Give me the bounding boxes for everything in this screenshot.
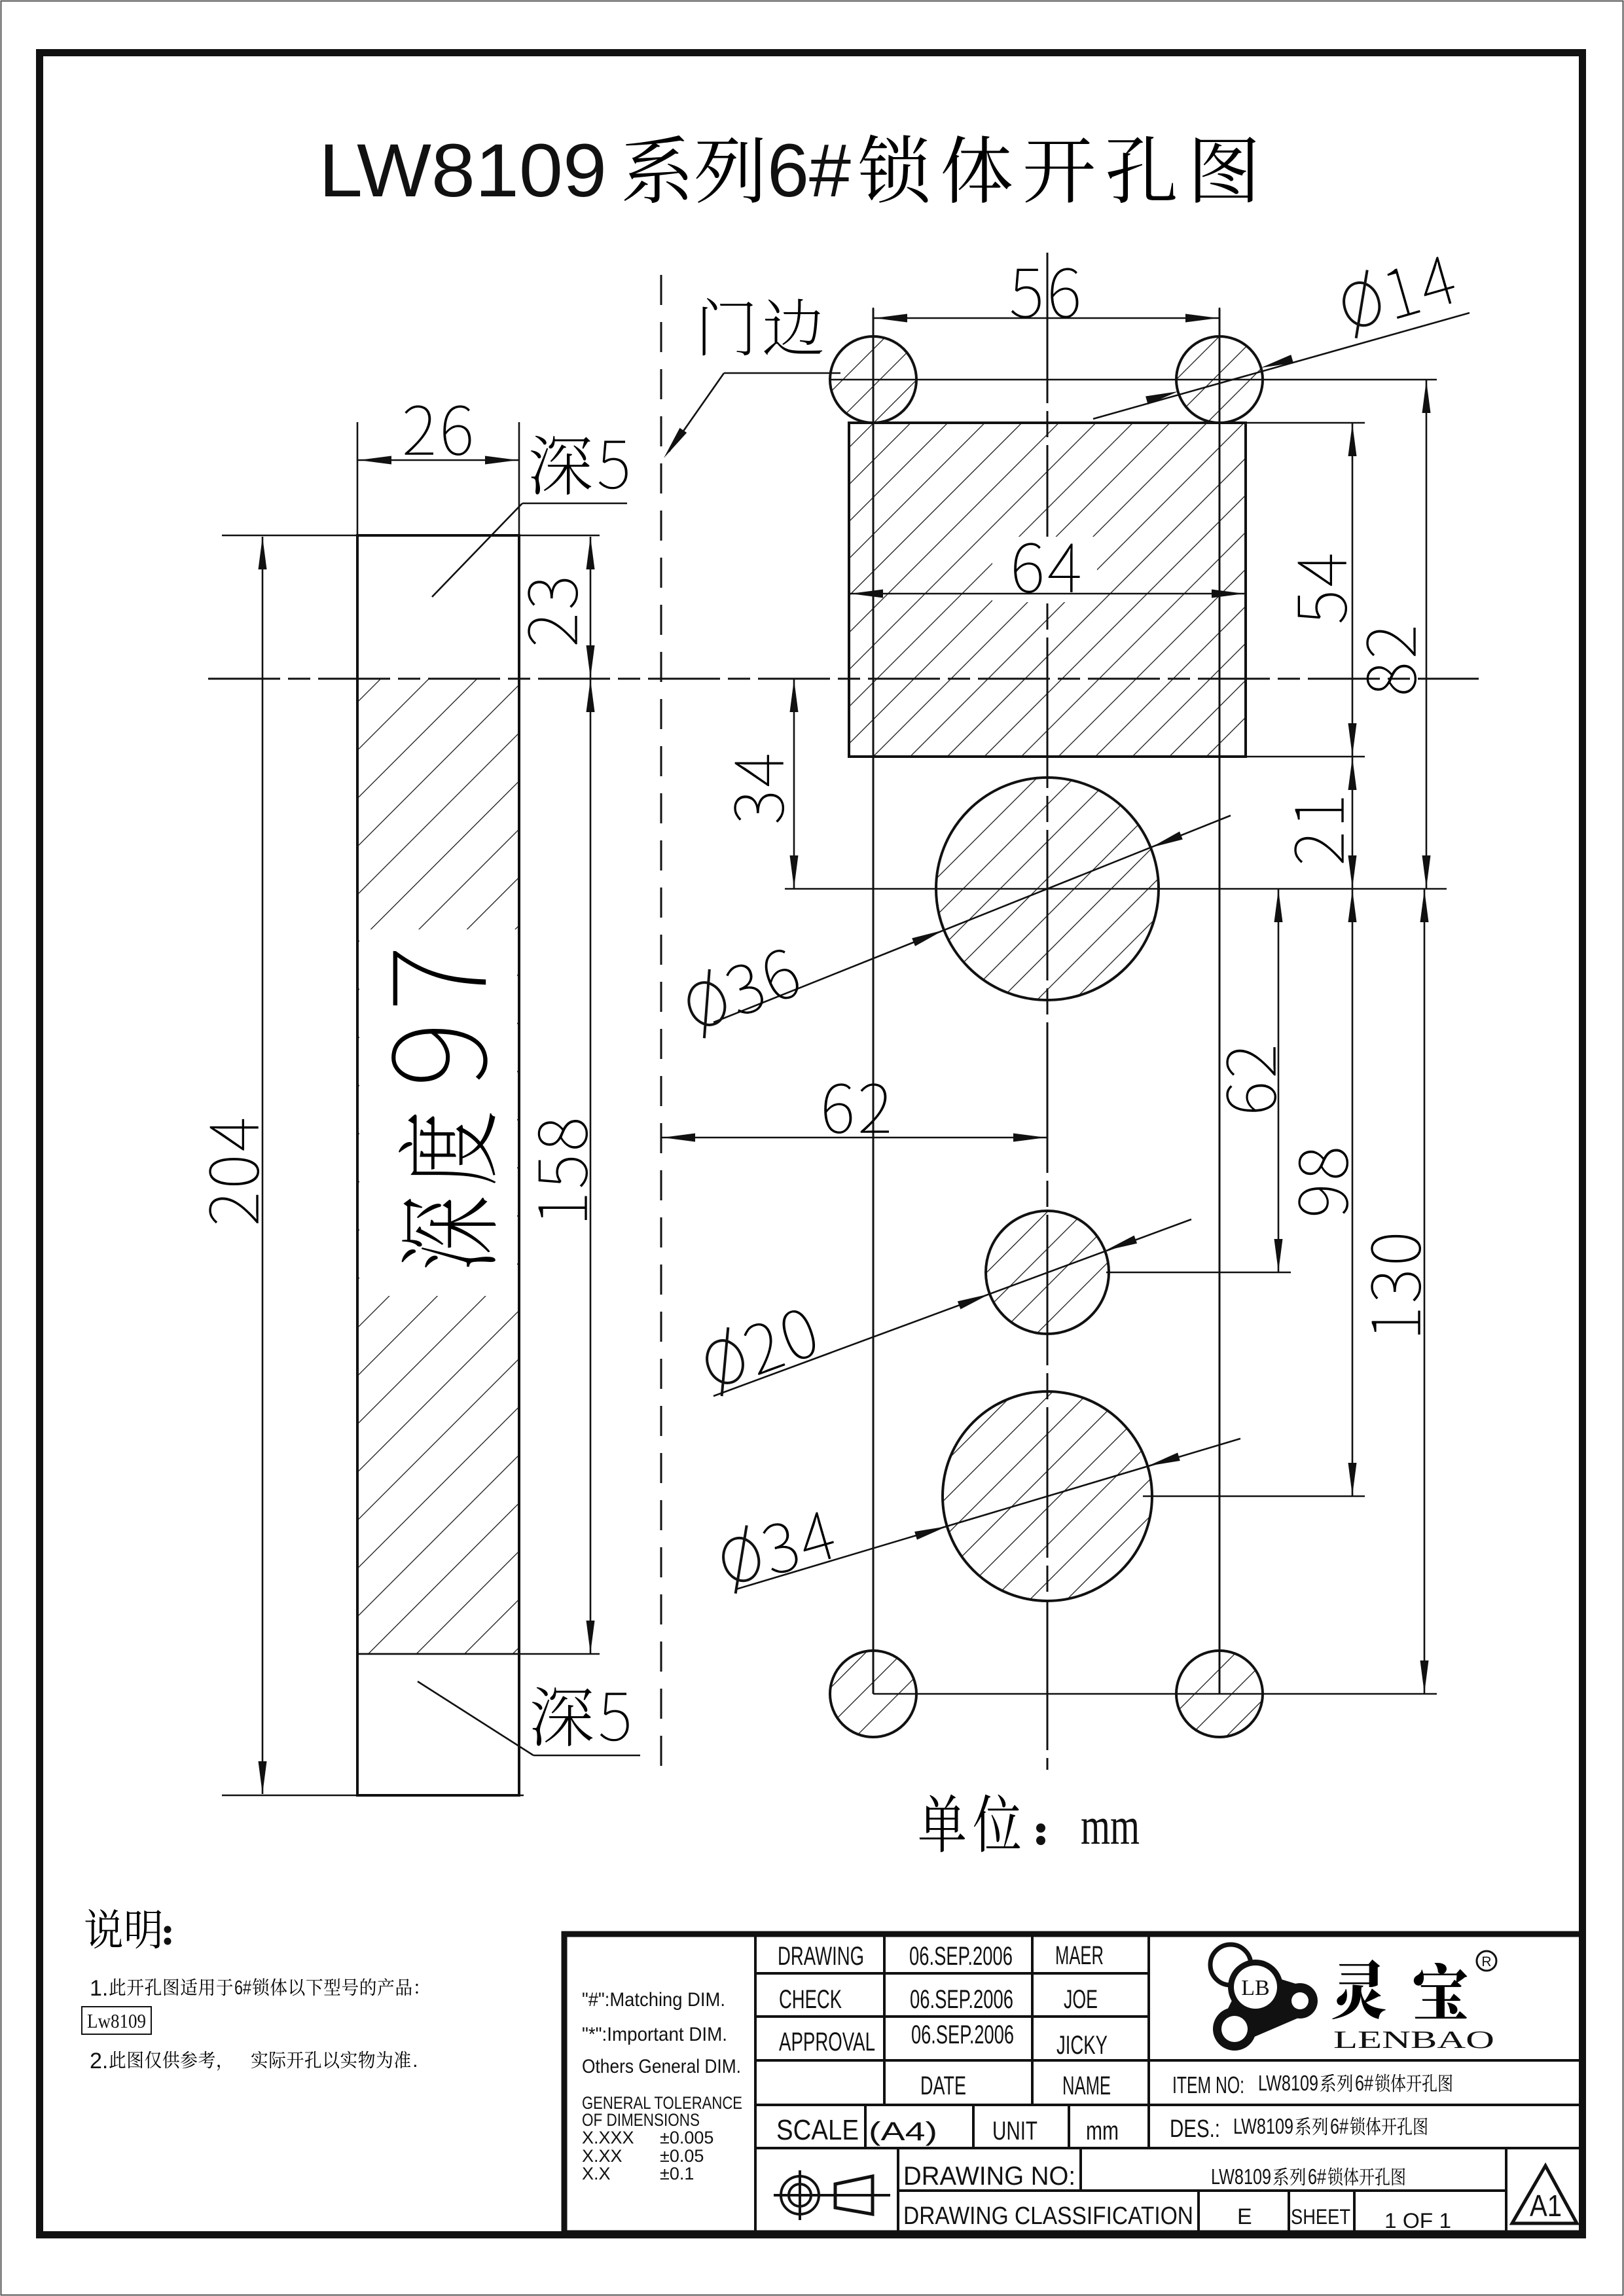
svg-text:mm: mm	[1081, 1796, 1140, 1856]
svg-text:LW8109: LW8109	[319, 129, 607, 213]
svg-text:A1: A1	[1530, 2189, 1562, 2223]
svg-text:6#: 6#	[1355, 2071, 1373, 2095]
svg-text:CHECK: CHECK	[779, 1985, 842, 2014]
svg-text:E: E	[1237, 2204, 1252, 2229]
svg-text:06.SEP.2006: 06.SEP.2006	[910, 1985, 1013, 2014]
svg-text:6#: 6#	[1308, 2164, 1326, 2189]
svg-text:DRAWING NO:: DRAWING NO:	[903, 2162, 1075, 2191]
svg-text:±0.05: ±0.05	[660, 2146, 704, 2166]
svg-text:±0.1: ±0.1	[660, 2164, 694, 2183]
svg-text:1 OF 1: 1 OF 1	[1384, 2209, 1451, 2233]
svg-text:X.XX: X.XX	[582, 2146, 623, 2166]
svg-text:LW8109: LW8109	[1211, 2164, 1271, 2189]
svg-text:DATE: DATE	[920, 2072, 966, 2100]
svg-text:SHEET: SHEET	[1291, 2205, 1350, 2229]
svg-text:JOE: JOE	[1064, 1985, 1098, 2014]
svg-text:JICKY: JICKY	[1056, 2031, 1108, 2060]
svg-text:06.SEP.2006: 06.SEP.2006	[909, 1942, 1013, 1971]
svg-text:±0.005: ±0.005	[660, 2128, 713, 2147]
svg-text:(A4): (A4)	[869, 2117, 937, 2146]
svg-text:"*":Important DIM.: "*":Important DIM.	[582, 2024, 727, 2045]
svg-text:APPROVAL: APPROVAL	[779, 2028, 875, 2056]
svg-text:.: .	[412, 2049, 418, 2072]
svg-text:ITEM NO:: ITEM NO:	[1172, 2072, 1244, 2098]
svg-text:2.: 2.	[90, 2049, 108, 2073]
svg-text:"#":Matching DIM.: "#":Matching DIM.	[582, 1989, 725, 2011]
svg-text:6#: 6#	[1330, 2114, 1348, 2138]
svg-text:DES.:: DES.:	[1170, 2115, 1220, 2143]
svg-text:6#: 6#	[767, 129, 851, 213]
svg-text:R: R	[1481, 1954, 1491, 1969]
svg-text:mm: mm	[1086, 2117, 1119, 2145]
svg-text:LENBAO: LENBAO	[1333, 2026, 1494, 2054]
svg-text:1.: 1.	[90, 1976, 108, 2001]
svg-text:X.X: X.X	[582, 2164, 611, 2183]
svg-text:OF DIMENSIONS: OF DIMENSIONS	[582, 2110, 700, 2130]
svg-text:06.SEP.2006: 06.SEP.2006	[911, 2020, 1014, 2049]
svg-text:UNIT: UNIT	[992, 2117, 1038, 2145]
svg-text:X.XXX: X.XXX	[582, 2128, 634, 2147]
svg-text:NAME: NAME	[1062, 2072, 1111, 2100]
svg-text:LW8109: LW8109	[1258, 2071, 1318, 2095]
svg-text:LB: LB	[1241, 1976, 1269, 2000]
svg-text:SCALE: SCALE	[776, 2114, 859, 2146]
svg-text:LW8109: LW8109	[1233, 2114, 1293, 2138]
svg-text:DRAWING CLASSIFICATION: DRAWING CLASSIFICATION	[903, 2202, 1193, 2230]
svg-text:6#: 6#	[234, 1976, 252, 1999]
svg-text:Others General DIM.: Others General DIM.	[582, 2056, 741, 2077]
svg-text:DRAWING: DRAWING	[778, 1942, 864, 1971]
svg-text:Lw8109: Lw8109	[87, 2009, 146, 2032]
svg-text:MAER: MAER	[1055, 1941, 1104, 1970]
